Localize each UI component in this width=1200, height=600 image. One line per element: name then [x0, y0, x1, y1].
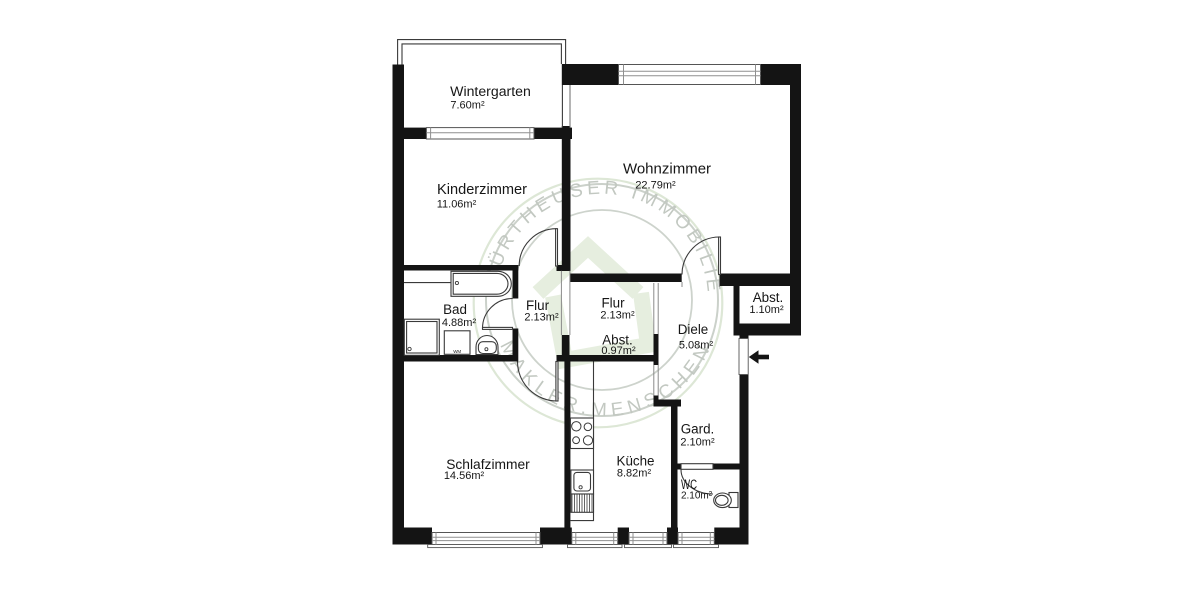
svg-text:Kinderzimmer: Kinderzimmer	[437, 182, 527, 198]
svg-text:0.97m²: 0.97m²	[601, 345, 636, 357]
svg-text:8.82m²: 8.82m²	[617, 468, 652, 480]
svg-text:2.13m²: 2.13m²	[600, 310, 635, 322]
svg-text:4.88m²: 4.88m²	[442, 317, 477, 329]
svg-text:2.13m²: 2.13m²	[524, 312, 559, 324]
svg-text:2.10m²: 2.10m²	[681, 491, 713, 502]
svg-text:11.06m²: 11.06m²	[437, 199, 477, 211]
svg-text:Bad: Bad	[443, 302, 467, 317]
svg-text:Abst.: Abst.	[753, 290, 784, 305]
svg-text:14.56m²: 14.56m²	[444, 470, 485, 482]
svg-text:Flur: Flur	[601, 296, 625, 311]
svg-text:Wohnzimmer: Wohnzimmer	[623, 161, 711, 178]
svg-text:Gard.: Gard.	[681, 422, 715, 437]
svg-text:22.79m²: 22.79m²	[635, 180, 676, 192]
svg-text:Küche: Küche	[617, 454, 655, 469]
svg-text:WÜRTHEUSER IMMOBILIEN: WÜRTHEUSER IMMOBILIEN	[0, 0, 724, 296]
svg-text:2.10m²: 2.10m²	[680, 437, 715, 449]
svg-text:1.10m²: 1.10m²	[749, 304, 784, 316]
svg-text:7.60m²: 7.60m²	[450, 100, 485, 112]
svg-text:5.08m²: 5.08m²	[679, 340, 714, 352]
svg-text:Wintergarten: Wintergarten	[450, 83, 531, 99]
svg-text:WM: WM	[453, 349, 461, 354]
svg-text:Diele: Diele	[678, 322, 709, 337]
